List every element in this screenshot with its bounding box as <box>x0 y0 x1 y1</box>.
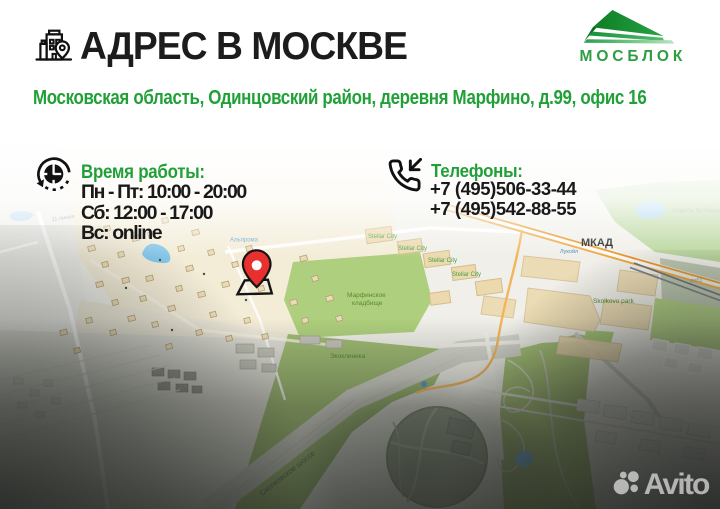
svg-text:Avito: Avito <box>644 468 710 501</box>
svg-text:кладбище: кладбище <box>352 299 383 307</box>
svg-text:МОСБЛОК: МОСБЛОК <box>580 48 684 65</box>
